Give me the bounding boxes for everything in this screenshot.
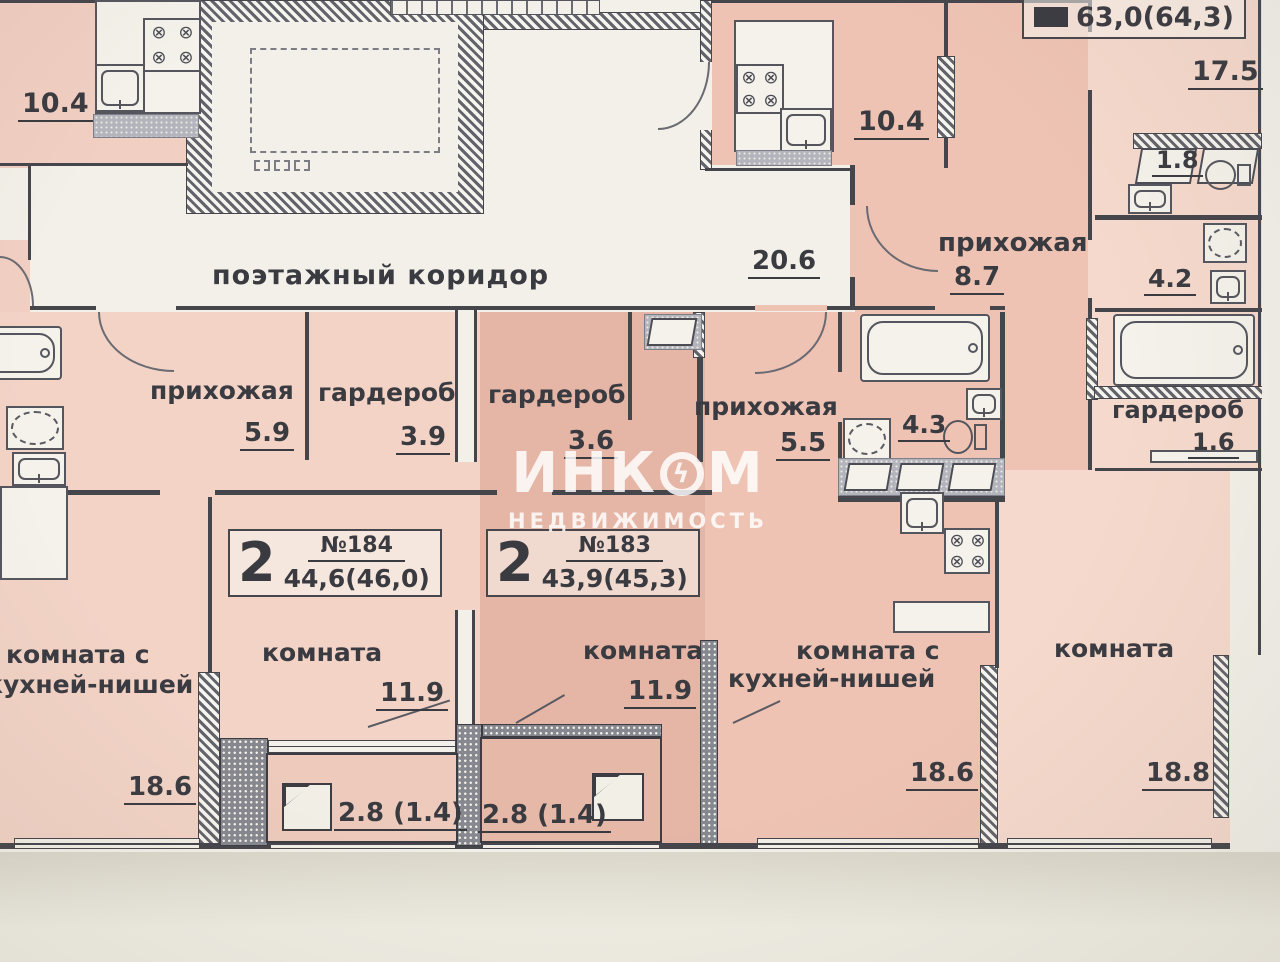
stove-burner-icon xyxy=(946,530,967,551)
apartment-area: 63,0(64,3) xyxy=(1076,0,1234,33)
balcony-window-icon xyxy=(268,740,456,753)
lightning-icon: ϟ xyxy=(672,461,691,487)
window-icon xyxy=(757,838,979,849)
photo-bottom xyxy=(0,852,1280,962)
wall xyxy=(208,497,212,675)
watermark-text: М xyxy=(707,441,765,506)
room-area-label: 18.6 xyxy=(906,758,978,788)
balcony-glazing-icon xyxy=(282,783,332,831)
kitchen-counter xyxy=(0,486,68,580)
wardrobe-shelf-icon xyxy=(844,463,893,491)
wardrobe-shelf-icon xyxy=(647,318,698,346)
room-name-label: кухней-нишей xyxy=(728,664,935,693)
rooms-count: 2 xyxy=(496,540,534,586)
stove-burner-icon xyxy=(145,45,172,70)
incom-logo-o-icon: ϟ xyxy=(660,452,704,496)
bathtub-icon xyxy=(860,314,990,382)
room-name-label: прихожая xyxy=(938,228,1088,258)
wall xyxy=(455,610,475,740)
sink-icon xyxy=(900,492,944,534)
door-opening xyxy=(96,305,176,311)
washing-machine-icon xyxy=(843,418,891,460)
corridor-label: поэтажный коридор xyxy=(212,260,549,291)
room-area-label: 11.9 xyxy=(624,676,696,706)
stove-burner-icon xyxy=(738,89,760,112)
wall xyxy=(455,310,477,462)
room-name-label: комната с xyxy=(796,636,940,665)
room-area-label: 18.8 xyxy=(1142,758,1214,788)
watermark-text: ИНК xyxy=(511,441,657,506)
door-opening xyxy=(850,205,855,277)
room-area-label: 4.3 xyxy=(898,410,950,439)
stove-icon xyxy=(143,18,201,72)
stove-burner-icon xyxy=(967,551,988,572)
kitchen-worktop xyxy=(736,150,832,166)
sink-icon xyxy=(1128,184,1172,214)
window-icon xyxy=(14,838,200,849)
room-area-label: 3.9 xyxy=(396,422,450,452)
wall xyxy=(1095,215,1262,220)
stove-burner-icon xyxy=(760,66,782,89)
apartment-badge-184: 2 №184 44,6(46,0) xyxy=(228,529,442,597)
sink-icon xyxy=(1210,270,1246,304)
kitchen-counter xyxy=(893,601,990,633)
room-area-label: 1.6 xyxy=(1188,428,1239,456)
washing-machine-icon xyxy=(1203,223,1247,263)
stove-icon xyxy=(944,528,990,574)
room-area-label: 5.9 xyxy=(240,418,294,448)
stove-burner-icon xyxy=(172,45,199,70)
wall xyxy=(1095,468,1262,471)
stove-burner-icon xyxy=(145,20,172,45)
rooms-count: 2 xyxy=(238,540,276,586)
corridor-area-label: 20.6 xyxy=(748,246,820,276)
stove-burner-icon xyxy=(946,551,967,572)
wall xyxy=(995,472,999,668)
room-area-label: 8.7 xyxy=(950,262,1004,292)
stove-burner-icon xyxy=(967,530,988,551)
room-name-label: комната xyxy=(583,636,703,665)
watermark-logo: ИНК ϟ М xyxy=(498,441,778,506)
window-icon xyxy=(1007,838,1212,849)
stove-icon xyxy=(736,64,784,114)
wall xyxy=(28,165,31,260)
stairs-icon xyxy=(390,0,600,15)
room-area-label: 10.4 xyxy=(854,106,929,137)
wall xyxy=(1088,400,1092,470)
vent-shaft-icon xyxy=(294,160,310,171)
wall-masonry xyxy=(482,724,662,737)
vent-shaft-icon xyxy=(254,160,270,171)
stove-burner-icon xyxy=(172,20,199,45)
wall xyxy=(705,168,853,171)
apartment-badge-top: 63,0(64,3) xyxy=(1022,0,1246,39)
door-opening xyxy=(1088,240,1092,298)
room-area-label: 4.2 xyxy=(1144,264,1196,293)
balcony-area-label: 2.8 (1.4) xyxy=(334,798,467,828)
room-area-label: 10.4 xyxy=(18,88,93,119)
toilet-icon xyxy=(1205,160,1251,190)
room-name-label: комната xyxy=(1054,634,1174,663)
photo-margin xyxy=(1262,0,1280,962)
wall xyxy=(628,312,632,420)
cut-off-glyph xyxy=(1034,7,1068,27)
wall-masonry xyxy=(220,738,268,846)
sink-icon xyxy=(780,108,832,152)
elevator-dashed-outline xyxy=(250,48,440,153)
wall xyxy=(944,0,948,56)
room-name-label: кухней-нишей xyxy=(0,670,193,699)
room-name-label: гардероб xyxy=(1112,396,1244,424)
room-area-label: 17.5 xyxy=(1188,56,1263,87)
wall xyxy=(1258,0,1261,655)
room-name-label: комната xyxy=(262,638,382,667)
wall-hatch xyxy=(937,56,955,138)
wall-hatch xyxy=(980,665,998,848)
apartment-area: 43,9(45,3) xyxy=(542,562,688,593)
wall xyxy=(944,138,948,168)
sink-icon xyxy=(12,452,66,486)
door-opening xyxy=(1088,32,1092,90)
watermark-subtitle: НЕДВИЖИМОСТЬ xyxy=(498,509,778,533)
wall-hatch xyxy=(1213,655,1229,818)
door-opening xyxy=(838,372,842,422)
kitchen-worktop xyxy=(93,114,199,138)
wall-hatch xyxy=(198,672,220,848)
wall-masonry xyxy=(700,640,718,848)
watermark: ИНК ϟ М НЕДВИЖИМОСТЬ xyxy=(498,441,778,533)
room-name-label: гардероб xyxy=(488,380,626,409)
apartment-number: №184 xyxy=(308,533,404,562)
vent-shaft-icon xyxy=(274,160,290,171)
wall xyxy=(305,312,309,460)
door-opening xyxy=(935,305,990,311)
wardrobe-shelf-icon xyxy=(948,463,997,491)
stove-burner-icon xyxy=(760,89,782,112)
sink-icon xyxy=(95,64,145,112)
apartment-badge-183: 2 №183 43,9(45,3) xyxy=(486,529,700,597)
bathtub-icon xyxy=(1113,314,1255,386)
apartment-number: №183 xyxy=(566,533,662,562)
door-opening xyxy=(755,305,827,311)
apartment-area: 44,6(46,0) xyxy=(284,562,430,593)
room-area-label: 1.8 xyxy=(1152,146,1203,174)
wardrobe-shelf-icon xyxy=(896,463,945,491)
room-name-label: прихожая xyxy=(150,376,294,405)
sink-icon xyxy=(966,388,1002,420)
wall xyxy=(1095,308,1262,312)
room-name-label: гардероб xyxy=(318,378,456,407)
wall xyxy=(30,306,1005,310)
door-opening xyxy=(160,490,215,495)
room-name-label: комната с xyxy=(6,640,150,669)
bathtub-icon xyxy=(0,326,62,380)
room-area-label: 11.9 xyxy=(376,678,448,708)
floorplan-photo: 10.4 поэтажный коридор 20.6 10.4 прихожа… xyxy=(0,0,1280,962)
room-area-label: 18.6 xyxy=(124,772,196,802)
stove-burner-icon xyxy=(738,66,760,89)
room-name-label: прихожая xyxy=(694,392,838,421)
washing-machine-icon xyxy=(6,406,64,450)
room-area-label: 5.5 xyxy=(776,428,830,458)
balcony-area-label: 2.8 (1.4) xyxy=(478,800,611,830)
